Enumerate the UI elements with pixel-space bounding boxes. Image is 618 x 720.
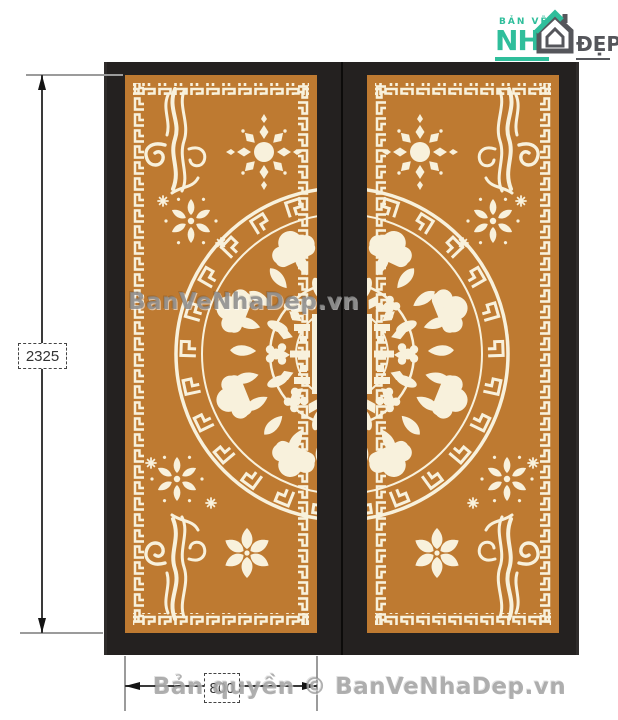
arrow-up-icon [38,75,46,90]
height-dimension-value: 2325 [26,348,59,365]
door-gap-line [341,62,343,655]
right-door-pattern [367,75,559,633]
logo-text-gray: ĐẸP [576,34,618,54]
height-dimension-label: 2325 [18,343,67,369]
logo-underline-green [495,57,549,61]
house-icon [531,9,579,57]
right-door-panel [367,75,559,633]
logo-underline-gray [576,58,610,60]
width-dimension-value: 800 [209,680,234,697]
left-door-pattern [125,75,317,633]
left-door-panel [125,75,317,633]
drawing-canvas: 2325 800 BanVeNhaDep.vn Bản quyền © BanV… [0,0,618,720]
arrow-left-icon [125,682,140,690]
arrow-right-icon [302,682,317,690]
width-dimension-label: 800 [204,673,240,703]
arrow-down-icon [38,618,46,633]
brand-logo: BẢN VẼ NH ĐẸP [488,8,616,64]
extension-line-bottom [20,632,103,634]
